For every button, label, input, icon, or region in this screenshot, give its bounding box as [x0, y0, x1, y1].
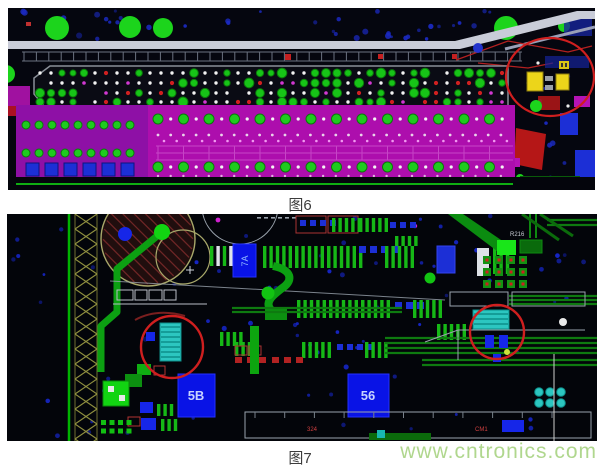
ic-5b-label: 5B	[188, 388, 205, 403]
blue-component	[437, 246, 455, 273]
green-pad-rect	[265, 308, 287, 320]
refdes-324: 324	[307, 427, 318, 433]
bright-green-pad	[497, 240, 516, 255]
pcb6-canvas	[8, 8, 595, 190]
figure7-caption: 图7	[0, 447, 600, 468]
tall-green-component	[250, 326, 259, 374]
blue-via-pad	[118, 227, 132, 241]
plane-patch	[8, 86, 30, 106]
white-pad	[559, 318, 567, 326]
green-via-pad	[262, 287, 275, 300]
blue-component	[502, 420, 524, 432]
teal-pad	[377, 430, 385, 438]
figure7-pcb-image: 7A R216	[7, 214, 597, 441]
figure6-caption: 图6	[0, 194, 600, 215]
green-pad	[425, 273, 436, 284]
pcb7-canvas: 7A R216	[7, 214, 597, 441]
figure6-pcb-image	[8, 8, 595, 190]
refdes-cm1: CM1	[475, 427, 488, 433]
article-page: 图6	[0, 0, 600, 469]
refdes-r216: R216	[510, 232, 525, 238]
green-via-pad	[154, 224, 170, 240]
ic-56-label: 56	[361, 388, 375, 403]
ic-7a-label: 7A	[240, 255, 250, 266]
dark-green-pad	[520, 240, 542, 253]
